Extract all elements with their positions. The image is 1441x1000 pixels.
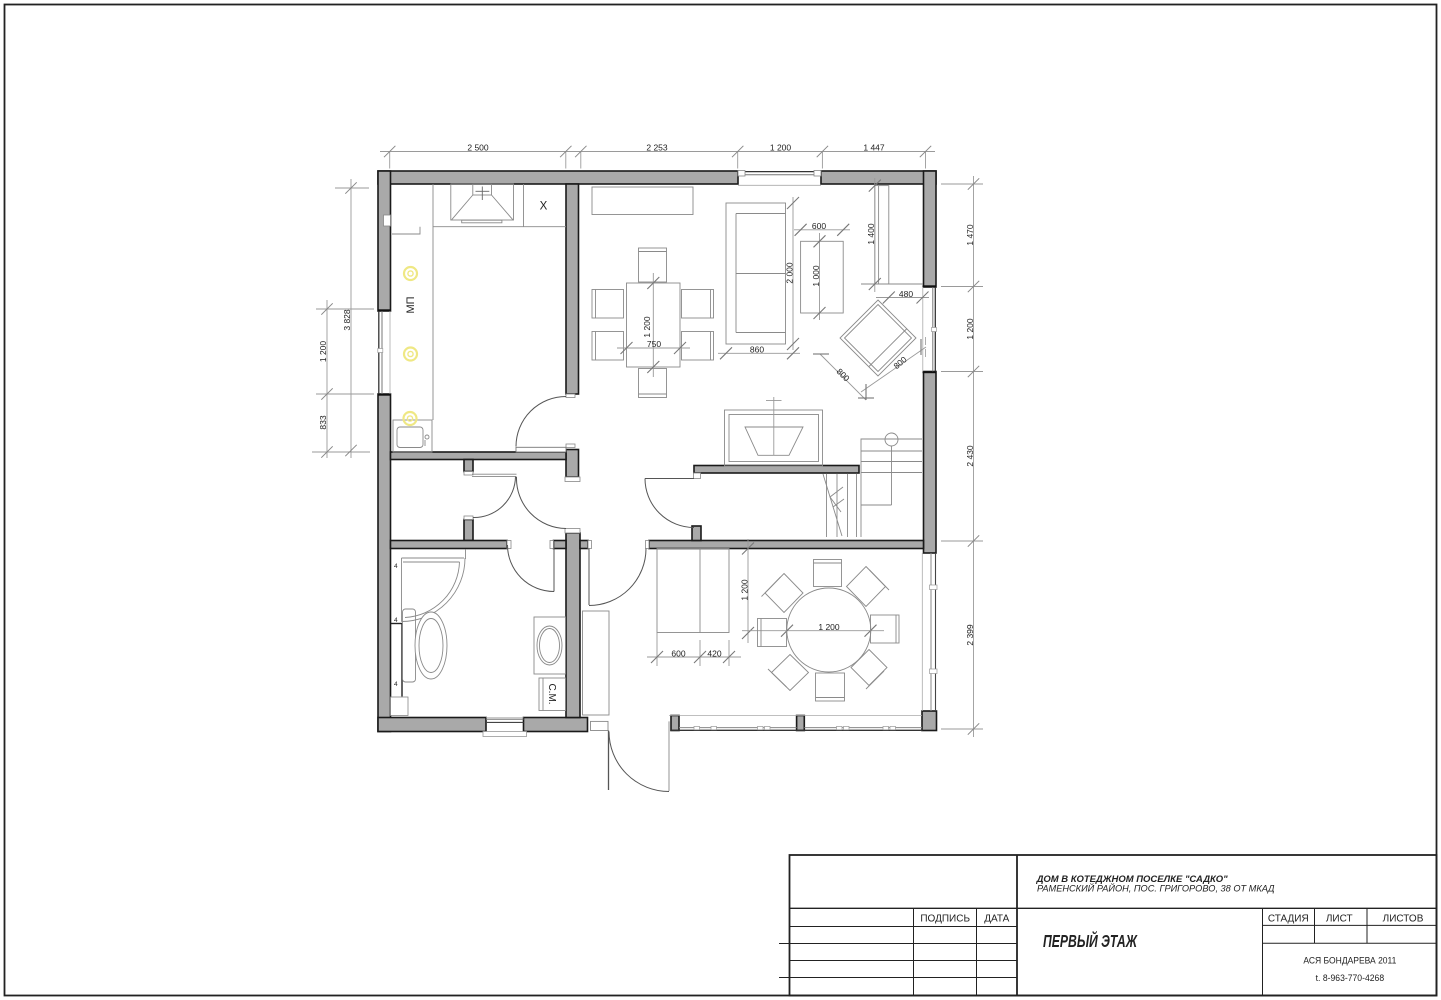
svg-text:860: 860 xyxy=(750,345,764,355)
svg-text:ПОДПИСЬ: ПОДПИСЬ xyxy=(920,914,970,925)
svg-text:3 828: 3 828 xyxy=(342,309,352,331)
svg-text:АСЯ БОНДАРЕВА 2011: АСЯ БОНДАРЕВА 2011 xyxy=(1303,956,1396,966)
svg-text:1 200: 1 200 xyxy=(642,316,652,338)
svg-text:480: 480 xyxy=(899,289,913,299)
svg-text:833: 833 xyxy=(318,415,328,429)
svg-text:1 200: 1 200 xyxy=(739,579,749,601)
svg-text:1 200: 1 200 xyxy=(818,622,840,632)
svg-text:1 200: 1 200 xyxy=(318,341,328,363)
svg-text:t. 8-963-770-4268: t. 8-963-770-4268 xyxy=(1316,973,1385,983)
svg-text:ЛИСТОВ: ЛИСТОВ xyxy=(1383,914,1424,925)
svg-text:1 470: 1 470 xyxy=(965,224,975,246)
svg-text:600: 600 xyxy=(671,648,685,658)
svg-text:2 000: 2 000 xyxy=(784,262,794,284)
svg-text:РАМЕНСКИЙ РАЙОН, ПОС. ГРИГОРОВ: РАМЕНСКИЙ РАЙОН, ПОС. ГРИГОРОВО, 38 ОТ М… xyxy=(1037,883,1275,894)
svg-text:С.М.: С.М. xyxy=(546,683,557,704)
svg-text:4: 4 xyxy=(394,681,398,688)
svg-text:1 400: 1 400 xyxy=(866,223,876,245)
svg-text:ДАТА: ДАТА xyxy=(984,914,1009,925)
svg-text:4: 4 xyxy=(394,563,398,570)
svg-text:1 200: 1 200 xyxy=(965,318,975,340)
svg-text:1 200: 1 200 xyxy=(770,142,792,152)
svg-text:2 399: 2 399 xyxy=(965,624,975,646)
svg-text:2 253: 2 253 xyxy=(646,142,668,152)
svg-text:2 430: 2 430 xyxy=(965,445,975,467)
svg-text:ДОМ В КОТЕДЖНОМ ПОСЕЛКЕ "САДКО: ДОМ В КОТЕДЖНОМ ПОСЕЛКЕ "САДКО" xyxy=(1036,874,1229,884)
svg-text:X: X xyxy=(540,201,548,213)
svg-text:600: 600 xyxy=(812,221,826,231)
svg-text:4: 4 xyxy=(394,617,398,624)
svg-text:750: 750 xyxy=(647,339,661,349)
svg-text:ЛИСТ: ЛИСТ xyxy=(1326,914,1353,925)
svg-text:1 447: 1 447 xyxy=(863,142,885,152)
svg-text:1 000: 1 000 xyxy=(811,265,821,287)
svg-text:МП: МП xyxy=(405,296,417,313)
svg-text:СТАДИЯ: СТАДИЯ xyxy=(1268,914,1309,925)
svg-text:2 500: 2 500 xyxy=(467,142,489,152)
svg-text:ПЕРВЫЙ ЭТАЖ: ПЕРВЫЙ ЭТАЖ xyxy=(1043,930,1138,951)
svg-text:420: 420 xyxy=(707,648,721,658)
